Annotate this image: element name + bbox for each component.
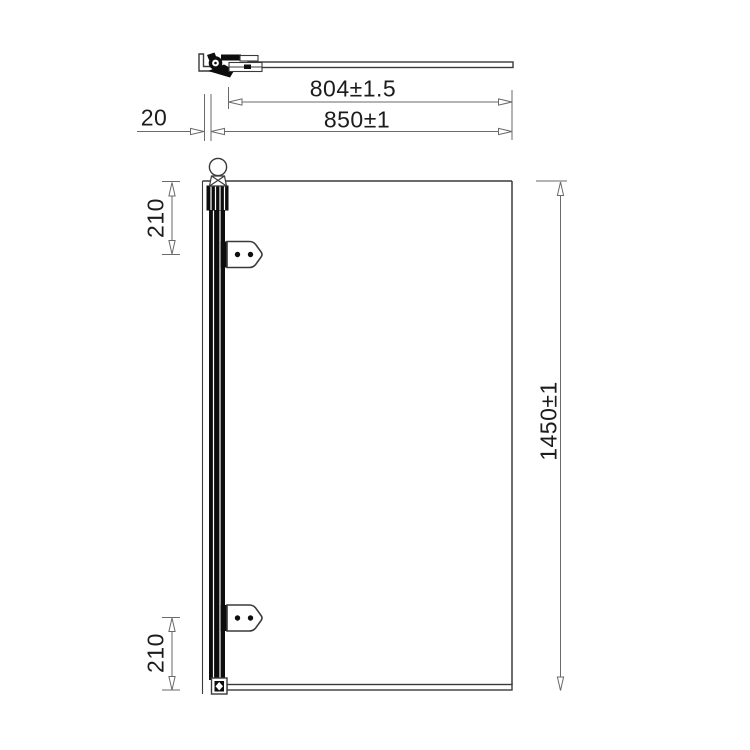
- technical-drawing-bath-screen: 804±1.5 850±1 20 210 210 1450±1: [0, 0, 750, 750]
- glass-panel-plan: [248, 62, 513, 68]
- front-view: [162, 158, 567, 694]
- dim-label-top-hinge-offset: 210: [143, 198, 170, 238]
- ball-finial: [209, 158, 226, 175]
- arrow-down-icon: [557, 677, 563, 691]
- wall-bracket-top: [221, 242, 263, 268]
- arrow-down-icon: [169, 677, 175, 691]
- arrow-right-icon: [499, 128, 513, 134]
- arrow-up-icon: [169, 618, 175, 632]
- hinge-detail-plan: [199, 53, 262, 78]
- dim-label-glass-width: 804±1.5: [310, 76, 396, 103]
- screw-hole: [248, 252, 253, 257]
- dim-label-bottom-hinge-offset: 210: [143, 633, 170, 673]
- arrow-left-icon: [229, 99, 243, 105]
- arrow-down-icon: [169, 241, 175, 255]
- dim-label-wall-gap: 20: [141, 105, 168, 132]
- screw-hole: [248, 615, 253, 620]
- post-foot: [212, 678, 228, 694]
- wall-bracket-bottom: [221, 605, 263, 631]
- arrow-right-icon: [191, 128, 205, 134]
- dim-label-overall-width: 850±1: [324, 107, 390, 134]
- post-capital: [207, 186, 229, 211]
- arrow-left-icon: [211, 128, 225, 134]
- screw-hole: [235, 252, 240, 257]
- screw-hole: [235, 615, 240, 620]
- arrow-up-icon: [557, 182, 563, 196]
- bottom-rail: [227, 685, 512, 691]
- arrow-up-icon: [169, 183, 175, 197]
- arrow-right-icon: [499, 99, 513, 105]
- dim-label-overall-height: 1450±1: [536, 381, 563, 461]
